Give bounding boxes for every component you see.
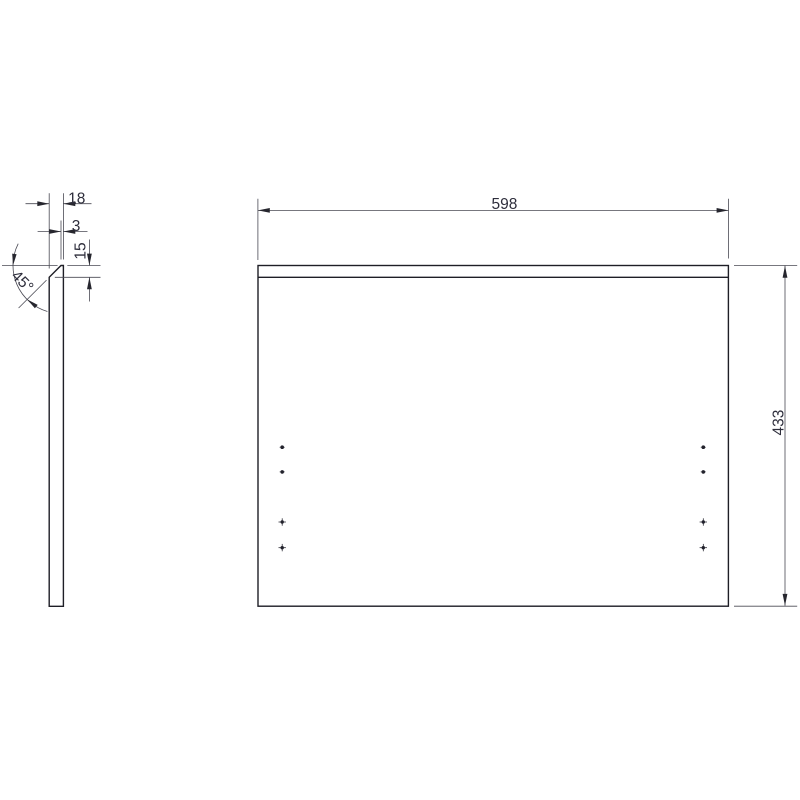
svg-text:45°: 45°	[8, 267, 37, 296]
svg-text:18: 18	[68, 190, 85, 207]
svg-text:3: 3	[72, 218, 81, 235]
svg-text:433: 433	[770, 410, 787, 436]
svg-text:15: 15	[72, 242, 89, 259]
svg-text:598: 598	[491, 196, 517, 213]
